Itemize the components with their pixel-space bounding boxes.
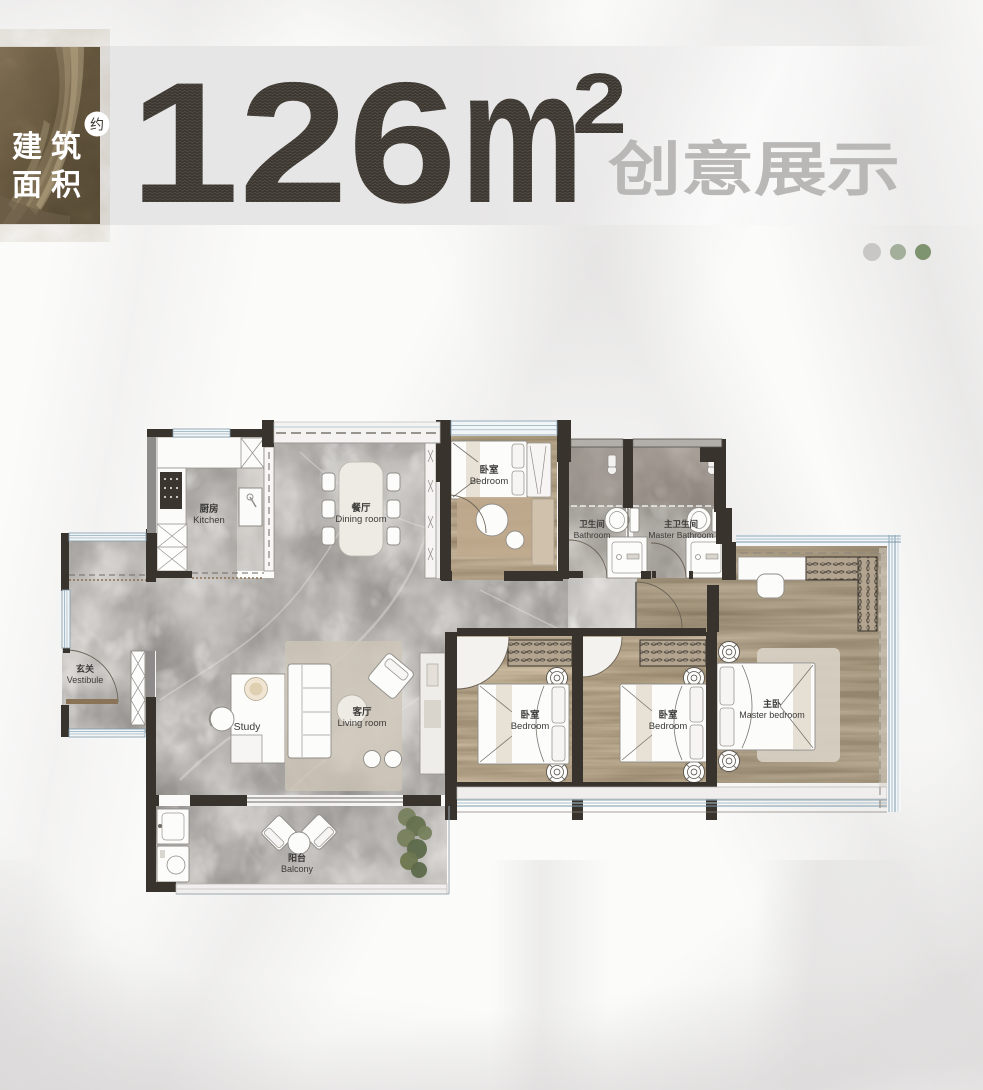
svg-text:Bedroom: Bedroom — [470, 476, 509, 487]
svg-text:主卧: 主卧 — [763, 698, 781, 709]
svg-text:Bedroom: Bedroom — [649, 721, 688, 732]
svg-text:厨房: 厨房 — [199, 503, 218, 515]
svg-text:Master Bathroom: Master Bathroom — [648, 530, 713, 540]
svg-text:客厅: 客厅 — [351, 706, 372, 718]
svg-text:Bedroom: Bedroom — [511, 721, 550, 732]
svg-text:卧室: 卧室 — [658, 709, 678, 721]
svg-text:Master bedroom: Master bedroom — [739, 710, 805, 720]
svg-text:餐厅: 餐厅 — [350, 502, 371, 514]
svg-text:Dining room: Dining room — [335, 514, 386, 525]
svg-text:Kitchen: Kitchen — [193, 515, 225, 526]
svg-text:主卫生间: 主卫生间 — [664, 519, 698, 529]
svg-text:卧室: 卧室 — [479, 464, 499, 476]
svg-text:玄关: 玄关 — [76, 663, 94, 674]
svg-text:卧室: 卧室 — [520, 709, 540, 721]
svg-text:Vestibule: Vestibule — [67, 675, 104, 685]
svg-text:Living room: Living room — [337, 718, 386, 729]
svg-text:Balcony: Balcony — [281, 864, 314, 874]
svg-text:卫生间: 卫生间 — [579, 519, 605, 529]
svg-text:阳台: 阳台 — [288, 852, 306, 863]
svg-text:Bathroom: Bathroom — [574, 530, 611, 540]
svg-text:Study: Study — [234, 721, 262, 733]
